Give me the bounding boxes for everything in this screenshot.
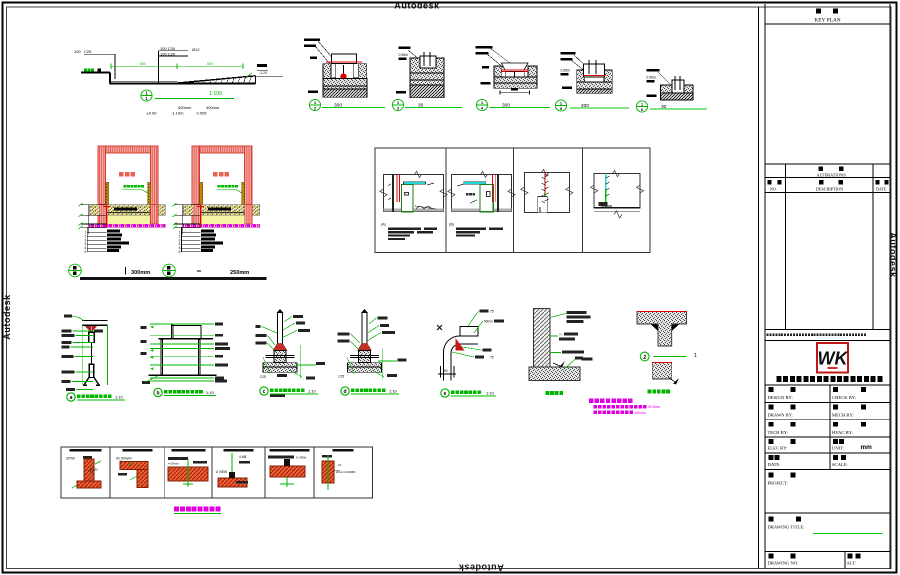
svg-text:ALT:: ALT: (847, 561, 857, 566)
svg-text:1: 1 (145, 96, 148, 101)
svg-text:-1.20: -1.20 (259, 71, 267, 75)
svg-text:1: 1 (560, 100, 563, 105)
svg-text:CHECK BY:: CHECK BY: (832, 395, 856, 400)
svg-text:c: c (263, 389, 266, 395)
svg-text:DATE:: DATE: (768, 462, 781, 467)
svg-text:(A): (A) (381, 223, 386, 227)
svg-text:300mm: 300mm (131, 270, 150, 276)
svg-text:10: 10 (338, 463, 342, 467)
svg-text:1:10: 1:10 (389, 388, 398, 393)
svg-text:1: 1 (145, 90, 148, 95)
svg-text:HVAC BY:: HVAC BY: (832, 430, 853, 435)
svg-text:mm: mm (861, 444, 873, 451)
svg-text:0.55m: 0.55m (646, 76, 656, 80)
svg-text:400mm: 400mm (206, 105, 220, 110)
svg-text:75: 75 (490, 309, 494, 313)
svg-text:1:100: 1:100 (209, 91, 222, 97)
svg-text:50mm: 50mm (484, 320, 493, 324)
svg-text:ELEC BY:: ELEC BY: (768, 446, 788, 451)
svg-text:1: 1 (694, 353, 697, 359)
svg-text:5: 5 (560, 106, 563, 111)
svg-text:75: 75 (490, 356, 494, 360)
svg-text:(B): (B) (449, 223, 454, 227)
svg-text:500: 500 (207, 62, 213, 66)
svg-text:NO.: NO. (770, 187, 777, 192)
svg-text:3: 3 (397, 106, 400, 111)
svg-text:UNIT:: UNIT: (832, 446, 844, 451)
svg-text:1: 1 (397, 100, 400, 105)
svg-text:100: 100 (74, 49, 81, 54)
svg-text:-1.10m: -1.10m (171, 111, 184, 116)
svg-text:Autodesk: Autodesk (2, 294, 12, 340)
svg-text:e: e (444, 391, 447, 397)
svg-text:6: 6 (179, 250, 181, 254)
svg-text:50: 50 (444, 369, 448, 373)
svg-text:Ø12: Ø12 (192, 47, 200, 52)
svg-text:0.55m: 0.55m (399, 53, 409, 57)
svg-text:1: 1 (641, 101, 644, 106)
svg-text:30*50: 30*50 (90, 468, 98, 472)
svg-text:DRAWING NO:: DRAWING NO: (768, 561, 799, 566)
svg-text:MECH BY:: MECH BY: (832, 413, 854, 418)
svg-text:2: 2 (314, 106, 317, 111)
svg-text:1: 1 (314, 100, 317, 105)
svg-text:40_50m/m²: 40_50m/m² (116, 456, 132, 460)
svg-text:KEY PLAN: KEY PLAN (814, 18, 840, 24)
svg-text:1:10: 1:10 (308, 388, 317, 393)
svg-text:C25: C25 (84, 49, 92, 54)
svg-text:30: 30 (418, 103, 424, 109)
svg-text:4-M8: 4-M8 (239, 455, 246, 459)
svg-text:DESCRIPTION: DESCRIPTION (816, 187, 843, 192)
svg-text:6: 6 (85, 250, 87, 254)
svg-text:100 C20: 100 C20 (160, 51, 176, 56)
svg-text:300: 300 (334, 103, 342, 109)
svg-text:20m/m=100MM: 20m/m=100MM (336, 470, 356, 474)
svg-text:400mm: 400mm (178, 105, 192, 110)
svg-text:30: 30 (661, 104, 667, 110)
svg-text:2: 2 (643, 355, 646, 361)
svg-text:100 C30: 100 C30 (160, 46, 176, 51)
svg-text:1:10: 1:10 (486, 390, 495, 395)
svg-text:250mm: 250mm (230, 270, 249, 276)
svg-text:30*60: 30*60 (66, 456, 75, 460)
svg-text:1:10: 1:10 (206, 390, 215, 395)
svg-text:1:10: 1:10 (115, 394, 124, 399)
svg-text:±0.00: ±0.00 (147, 111, 158, 116)
svg-text:6: 6 (641, 107, 644, 112)
svg-text:PROJECT:: PROJECT: (768, 481, 788, 486)
svg-text:300: 300 (502, 103, 510, 109)
svg-text:A VIEW: A VIEW (216, 470, 227, 474)
svg-text:a: a (70, 395, 73, 401)
svg-text:DESIGN BY:: DESIGN BY: (768, 395, 793, 400)
svg-text:0.55m: 0.55m (561, 69, 571, 73)
svg-text:C25: C25 (260, 375, 266, 379)
svg-text:DRAWN BY:: DRAWN BY: (768, 413, 793, 418)
svg-text:WK: WK (818, 349, 850, 369)
svg-text:1: 1 (481, 100, 484, 105)
svg-text:=0.8mm: =0.8mm (168, 462, 179, 466)
svg-text:7+: 7+ (559, 333, 563, 337)
svg-text:200: 200 (581, 103, 589, 109)
svg-text:500: 500 (140, 62, 146, 66)
svg-text:b: b (156, 391, 159, 397)
svg-text:Autodesk: Autodesk (394, 1, 440, 11)
svg-text:4: 4 (481, 106, 484, 111)
svg-text:DATE: DATE (876, 187, 887, 192)
svg-text:C25: C25 (338, 374, 344, 378)
svg-text:≥50mm: ≥50mm (635, 411, 646, 415)
svg-text:0.005: 0.005 (197, 111, 208, 116)
svg-text:A VIEW: A VIEW (296, 455, 307, 459)
svg-text:Autodesk: Autodesk (458, 563, 504, 573)
svg-text:ALTERATIONS: ALTERATIONS (816, 172, 846, 177)
svg-text:50.5mm: 50.5mm (648, 405, 660, 409)
svg-text:d: d (343, 389, 346, 395)
svg-text:TECH BY:: TECH BY: (768, 430, 788, 435)
svg-text:DRAWING TITLE:: DRAWING TITLE: (768, 525, 805, 530)
svg-text:SCALE:: SCALE: (832, 462, 848, 467)
